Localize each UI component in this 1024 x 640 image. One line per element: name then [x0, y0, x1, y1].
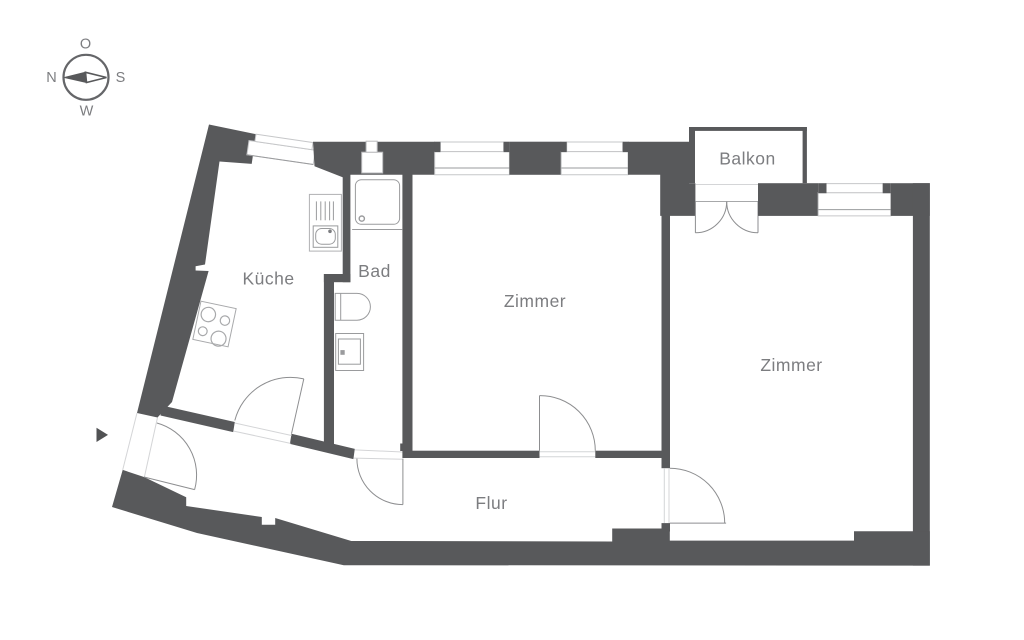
svg-text:Küche: Küche	[242, 269, 294, 289]
svg-text:Balkon: Balkon	[719, 149, 776, 169]
svg-text:Flur: Flur	[475, 493, 507, 513]
svg-text:O: O	[80, 37, 91, 53]
svg-text:Zimmer: Zimmer	[504, 291, 566, 311]
svg-text:Bad: Bad	[358, 261, 391, 281]
svg-text:N: N	[46, 70, 56, 86]
svg-text:Zimmer: Zimmer	[760, 355, 822, 375]
svg-text:S: S	[116, 70, 126, 86]
svg-text:W: W	[80, 104, 94, 120]
